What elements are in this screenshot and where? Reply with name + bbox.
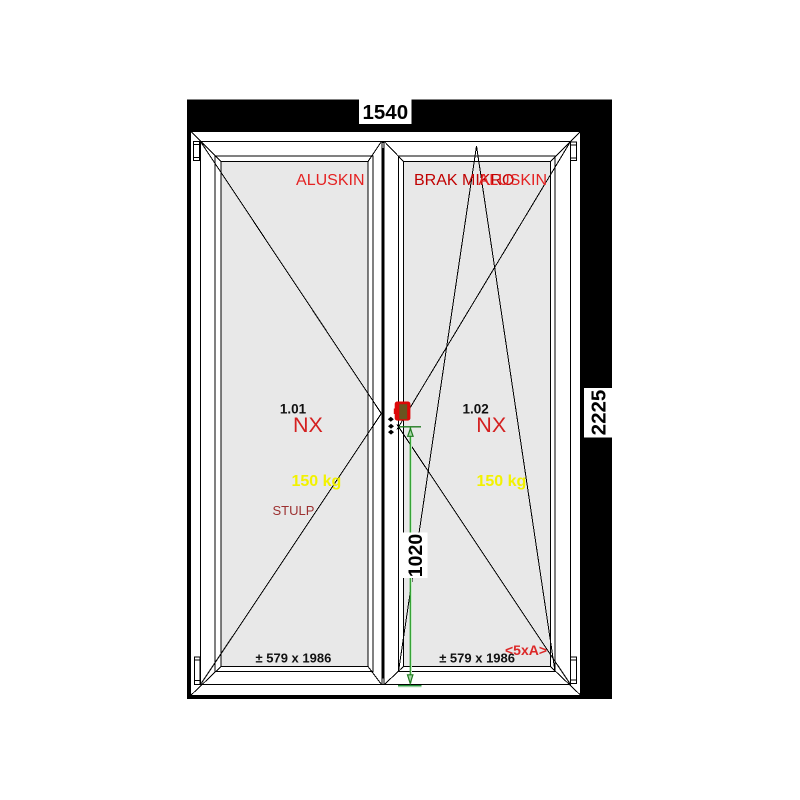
- svg-text:NX: NX: [293, 413, 323, 437]
- svg-text:<5xA>: <5xA>: [505, 642, 547, 658]
- svg-text:1020: 1020: [405, 534, 427, 578]
- svg-text:2225: 2225: [588, 390, 611, 436]
- svg-text:150 kg: 150 kg: [477, 473, 527, 490]
- svg-text:ALUSKIN: ALUSKIN: [296, 172, 364, 189]
- svg-text:± 579 x 1986: ± 579 x 1986: [256, 651, 332, 666]
- svg-text:± 579 x 1986: ± 579 x 1986: [439, 651, 515, 666]
- svg-text:NX: NX: [476, 413, 506, 437]
- svg-text:ALUSKIN: ALUSKIN: [479, 172, 547, 189]
- svg-text:150 kg: 150 kg: [292, 473, 342, 490]
- svg-text:STULP: STULP: [273, 503, 315, 518]
- svg-text:1540: 1540: [362, 101, 408, 124]
